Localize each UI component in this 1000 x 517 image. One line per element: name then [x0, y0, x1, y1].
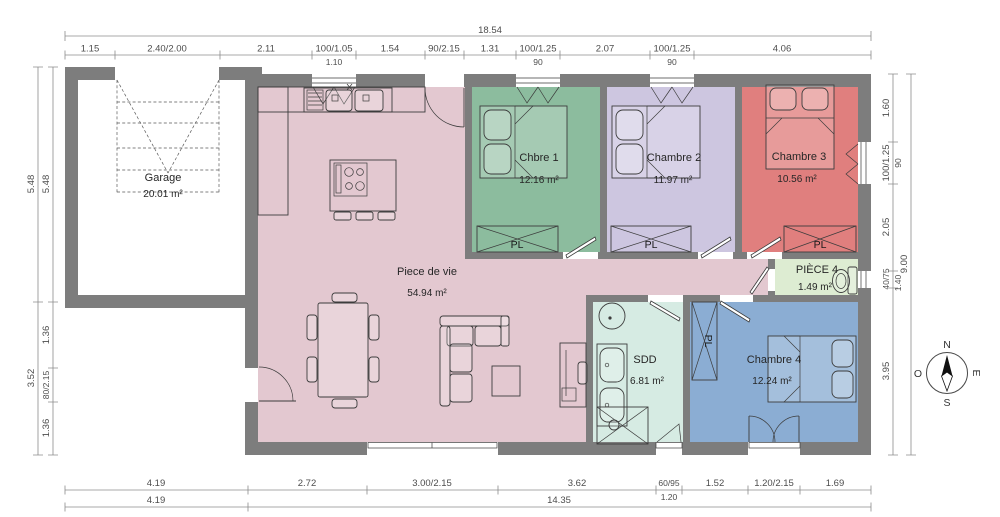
- dim-bottom-total-0: 4.19: [147, 495, 166, 506]
- wall-hall-4: [782, 252, 858, 259]
- wall-bottom-4: [800, 442, 871, 455]
- wall-hall-3: [733, 252, 747, 259]
- dim-right-4: 3.95: [881, 362, 892, 381]
- dim-top-2: 2.11: [257, 44, 275, 55]
- wall-left-2: [245, 402, 258, 455]
- wall-hall-2: [598, 252, 698, 259]
- dim-top-sub-2: 90: [667, 57, 677, 67]
- dim-left-inner-3: 1.36: [41, 419, 52, 438]
- dim-bottom-total-1: 14.35: [547, 495, 571, 506]
- wall-chambre2-chambre3: [735, 87, 742, 259]
- bed-chbre1: [480, 106, 567, 178]
- dim-bottom-5: 1.52: [706, 478, 725, 489]
- dim-top-0: 1.15: [81, 44, 100, 55]
- bed-chambre2: [612, 106, 700, 178]
- wall-piece4-left-top: [768, 259, 775, 269]
- dim-top-3: 100/1.05: [316, 44, 353, 55]
- floor-plan-drawing: Garage 20.01 m² Piece de vie 54.94 m² Ch…: [0, 0, 1000, 517]
- piece4-window: [861, 271, 866, 288]
- compass-s: S: [943, 397, 950, 409]
- compass-n: N: [943, 339, 951, 351]
- compass-o: O: [914, 368, 922, 380]
- chbre1-area: 12.16 m²: [519, 175, 559, 186]
- bed-chambre4: [768, 336, 856, 402]
- chambre2-name: Chambre 2: [647, 152, 701, 164]
- dim-bottom-4: 60/95: [658, 478, 680, 488]
- dim-right-sub-1: 1.40: [893, 274, 903, 291]
- wall-garage-left: [65, 67, 78, 308]
- piece-de-vie-area: 54.94 m²: [407, 288, 447, 299]
- dim-right-3: 40/75: [881, 268, 891, 290]
- dimensions-right: 1.60 100/1.25 2.05 40/75 3.95 90 1.40 9.…: [881, 74, 916, 455]
- room-garage-floor[interactable]: [78, 80, 245, 295]
- dimensions-bottom: 4.19 2.72 3.00/2.15 3.62 60/95 1.52 1.20…: [65, 478, 871, 512]
- dim-top-sub-0: 1.10: [326, 57, 343, 67]
- dim-top-6: 1.31: [481, 44, 500, 55]
- wall-top-4: [560, 74, 650, 87]
- floor-plan-page: Garage 20.01 m² Piece de vie 54.94 m² Ch…: [0, 0, 1000, 517]
- dim-bottom-7: 1.69: [826, 478, 845, 489]
- bay-window: [368, 443, 497, 449]
- wall-right-2: [858, 184, 871, 271]
- dim-left-inner-2: 80/2.15: [41, 371, 51, 400]
- wall-right-3: [858, 288, 871, 455]
- dim-top-4: 1.54: [381, 44, 400, 55]
- wall-garage-bottom: [65, 295, 258, 308]
- wall-sdd-top: [586, 295, 648, 302]
- dim-right-1: 100/1.25: [881, 145, 892, 182]
- dim-right-0: 1.60: [881, 99, 892, 118]
- closet-label-chambre4: PL: [702, 335, 714, 348]
- dim-right-2: 2.05: [881, 218, 892, 237]
- chambre2-area: 11.97 m²: [654, 175, 693, 186]
- wall-hall-1: [465, 252, 563, 259]
- dim-left-outer-0: 5.48: [26, 175, 37, 194]
- dim-bottom-sub-0: 1.20: [661, 492, 678, 502]
- wall-chambre4-top-2: [753, 295, 858, 302]
- compass-e: E: [970, 369, 982, 376]
- garage-area: 20.01 m²: [143, 189, 183, 200]
- sdd-area: 6.81 m²: [630, 376, 665, 387]
- wall-top-2: [356, 74, 425, 87]
- garage-name: Garage: [145, 172, 182, 184]
- wall-top-3: [464, 74, 516, 87]
- dim-top-8: 2.07: [596, 44, 615, 55]
- dim-bottom-0: 4.19: [147, 478, 166, 489]
- dim-bottom-2: 3.00/2.15: [412, 478, 452, 489]
- dim-top-sub-1: 90: [533, 57, 543, 67]
- closet-label-chbre1: PL: [511, 239, 524, 251]
- wall-garage-top-left: [65, 67, 115, 80]
- dim-top-10: 4.06: [773, 44, 792, 55]
- dim-bottom-1: 2.72: [298, 478, 317, 489]
- wall-sdd-chambre4: [683, 295, 690, 442]
- wall-chambre4-top-1: [690, 295, 720, 302]
- chambre4-area: 12.24 m²: [752, 376, 792, 387]
- dim-top-total: 18.54: [478, 25, 502, 36]
- compass: N S O E: [914, 339, 982, 409]
- dim-left-inner-1: 1.36: [41, 326, 52, 345]
- dim-bottom-3: 3.62: [568, 478, 587, 489]
- chbre1-name: Chbre 1: [519, 152, 558, 164]
- dim-right-total: 9.00: [899, 255, 910, 274]
- chambre3-area: 10.56 m²: [777, 174, 817, 185]
- dimensions-left: 5.48 3.52 5.48 1.36 80/2.15 1.36: [26, 67, 58, 455]
- dim-top-9: 100/1.25: [654, 44, 691, 55]
- wall-chbre1-chambre2: [600, 87, 607, 259]
- piece4-area: 1.49 m²: [798, 282, 833, 293]
- chambre4-name: Chambre 4: [747, 354, 801, 366]
- wall-bottom-1: [245, 442, 367, 455]
- closet-label-chambre3: PL: [814, 239, 827, 251]
- wall-chbre1-left: [465, 87, 472, 259]
- piece4-name: PIÈCE 4: [796, 263, 838, 276]
- closet-label-chambre2: PL: [645, 239, 658, 251]
- dim-right-sub-0: 90: [893, 158, 903, 168]
- dimensions-top: 18.54 1.15 2.40/2.00 2.11 100/1.05 1.54 …: [65, 25, 871, 67]
- wall-top-1: [258, 74, 312, 87]
- wall-left-1: [245, 74, 258, 368]
- dining-table: [307, 293, 379, 408]
- dim-top-1: 2.40/2.00: [147, 44, 187, 55]
- wall-bottom-3: [682, 442, 748, 455]
- sdd-name: SDD: [633, 354, 656, 366]
- piece-de-vie-name: Piece de vie: [397, 266, 457, 278]
- wall-right-1: [858, 74, 871, 142]
- dim-bottom-6: 1.20/2.15: [754, 478, 794, 489]
- dim-left-outer-1: 3.52: [26, 369, 37, 388]
- dim-left-inner-0: 5.48: [41, 175, 52, 194]
- dim-top-5: 90/2.15: [428, 44, 460, 55]
- bar-stools: [334, 212, 395, 220]
- chambre3-name: Chambre 3: [772, 151, 826, 163]
- dim-top-7: 100/1.25: [520, 44, 557, 55]
